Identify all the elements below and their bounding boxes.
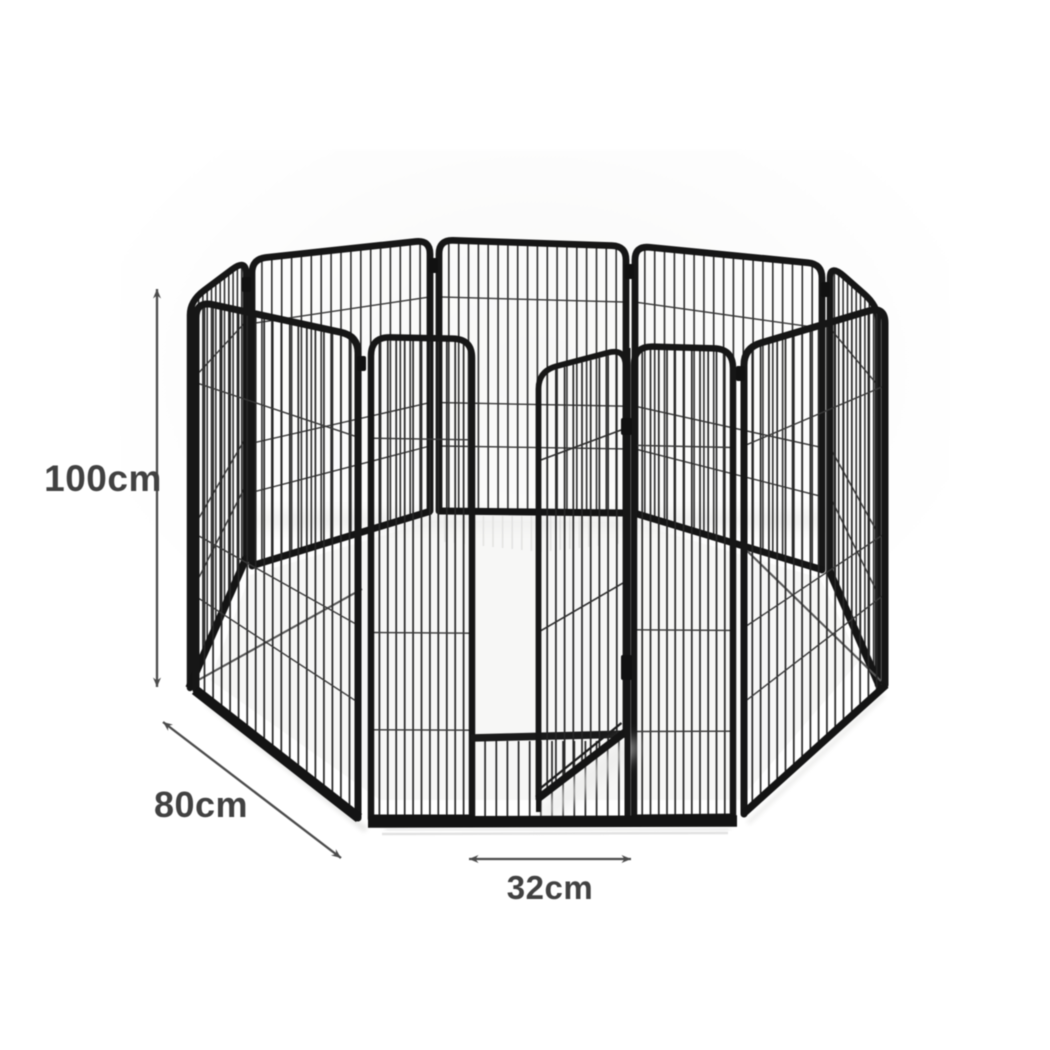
svg-text:100cm: 100cm bbox=[44, 458, 162, 499]
svg-text:80cm: 80cm bbox=[154, 784, 248, 825]
svg-text:32cm: 32cm bbox=[507, 869, 593, 906]
